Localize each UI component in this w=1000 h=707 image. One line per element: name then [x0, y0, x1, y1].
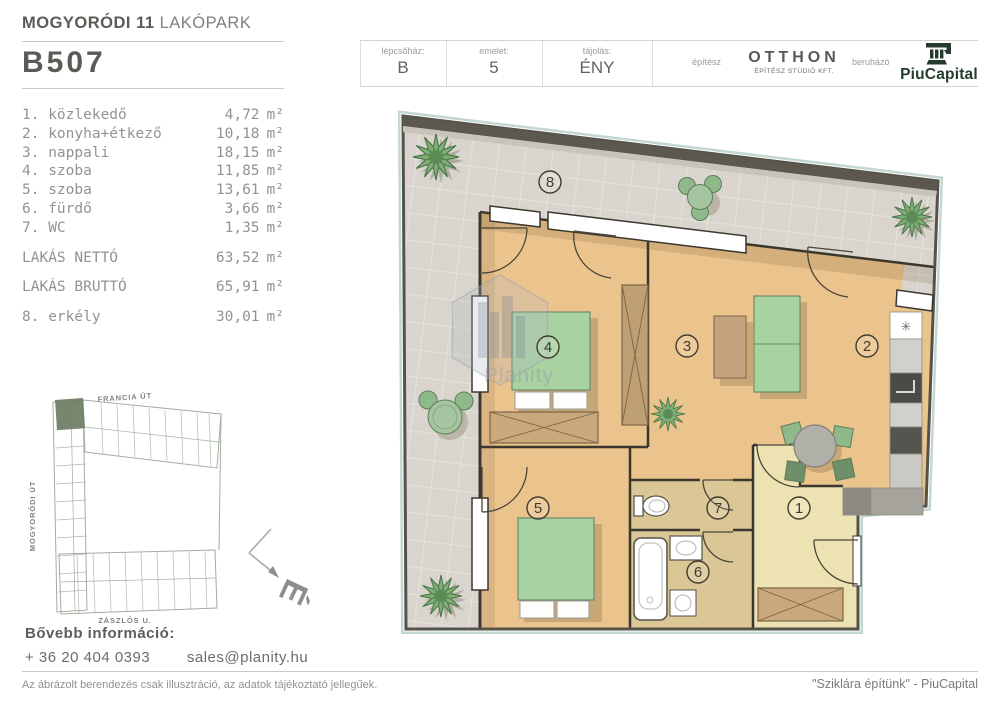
hall-wardrobe: [758, 588, 843, 621]
sofa: [754, 296, 800, 392]
wardrobe: [490, 412, 598, 443]
street-label-left: MOGYORÓDI ÚT: [28, 481, 37, 551]
floorplan-sheet: MOGYORÓDI 11 LAKÓPARK B507 1. közlekedő4…: [0, 0, 1000, 707]
compass-arrowhead: [268, 566, 279, 578]
floor-cell: emelet: 5: [446, 41, 542, 78]
total-net-row: LAKÁS NETTÓ63,52m²: [22, 249, 284, 268]
staircase-cell: lépcsőház: B: [360, 41, 446, 78]
svg-text:5: 5: [534, 500, 542, 517]
street-label-bottom: ZÁSZLÓS U.: [98, 616, 152, 625]
contact-phone: + 36 20 404 0393: [25, 649, 150, 666]
room-row: 6. fürdő3,66m²: [22, 200, 284, 219]
room-number-8: 8: [539, 171, 561, 193]
info-bar: lépcsőház: B emelet: 5 tájolás: ÉNY épít…: [360, 40, 978, 87]
compass-letter: É: [271, 574, 315, 611]
stove: [890, 373, 922, 403]
room-number-5: 5: [527, 497, 549, 519]
toilet: [634, 496, 669, 516]
project-suffix: LAKÓPARK: [160, 14, 252, 32]
north-compass: É: [235, 523, 320, 623]
developer-label: beruházó: [852, 57, 890, 67]
sink: [670, 536, 702, 560]
room-list: 1. közlekedő4,72m² 2. konyha+étkező10,18…: [22, 106, 284, 327]
svg-text:2: 2: [863, 338, 871, 355]
architect-logo: OTTHON ÉPÍTÉSZ STÚDIÓ KFT.: [735, 41, 853, 75]
orientation-cell: tájolás: ÉNY: [542, 41, 652, 78]
svg-text:8: 8: [546, 174, 554, 191]
svg-text:3: 3: [683, 338, 691, 355]
developer-name: PiuCapital: [900, 66, 978, 84]
svg-text:7: 7: [714, 500, 722, 517]
site-map: FRANCIA ÚT MOGYORÓDI ÚT ZÁSZLÓS U.: [25, 386, 235, 626]
piucapital-column-icon: [923, 41, 955, 66]
room-row: 7. WC1,35m²: [22, 219, 284, 238]
site-map-unit-highlight: [55, 398, 85, 430]
room-number-2: 2: [856, 335, 878, 357]
room-number-6: 6: [687, 561, 709, 583]
project-name: MOGYORÓDI 11: [22, 14, 155, 32]
cabinet: [622, 285, 648, 425]
unit-id: B507: [22, 46, 106, 80]
svg-text:4: 4: [544, 339, 552, 356]
room-number-3: 3: [676, 335, 698, 357]
bathtub: [634, 538, 667, 620]
watermark-text: Planity: [484, 364, 554, 387]
floor-plan: ✳: [388, 103, 966, 663]
balcony-row: 8. erkély30,01m²: [22, 308, 284, 327]
divider: [22, 88, 284, 89]
company-slogan: "Sziklára építünk" - PiuCapital: [812, 677, 978, 691]
disclaimer-text: Az ábrázolt berendezés csak illusztráció…: [22, 679, 377, 691]
room-row: 4. szoba11,85m²: [22, 162, 284, 181]
room-number-7: 7: [707, 497, 729, 519]
architect-label: építész: [692, 57, 721, 67]
divider: [652, 41, 653, 86]
room-row: 2. konyha+étkező10,18m²: [22, 125, 284, 144]
room-row: 1. közlekedő4,72m²: [22, 106, 284, 125]
sink-symbol: ✳: [901, 319, 912, 334]
room-row: 3. nappali18,15m²: [22, 144, 284, 163]
coffee-table: [714, 316, 746, 378]
room-number-1: 1: [788, 497, 810, 519]
contact-email: sales@planity.hu: [187, 649, 308, 666]
room-number-4: 4: [537, 336, 559, 358]
divider: [22, 41, 284, 42]
project-title: MOGYORÓDI 11 LAKÓPARK: [22, 14, 251, 33]
footer-divider: [22, 671, 978, 672]
washing-machine: [670, 590, 696, 616]
svg-text:1: 1: [795, 500, 803, 517]
svg-text:6: 6: [694, 564, 702, 581]
contact-line: + 36 20 404 0393 sales@planity.hu: [25, 649, 308, 666]
room-row: 5. szoba13,61m²: [22, 181, 284, 200]
contact-heading: Bővebb információ:: [25, 625, 175, 642]
street-label-top: FRANCIA ÚT: [97, 391, 152, 404]
total-gross-row: LAKÁS BRUTTÓ65,91m²: [22, 278, 284, 297]
developer-logo: PiuCapital: [896, 41, 982, 84]
